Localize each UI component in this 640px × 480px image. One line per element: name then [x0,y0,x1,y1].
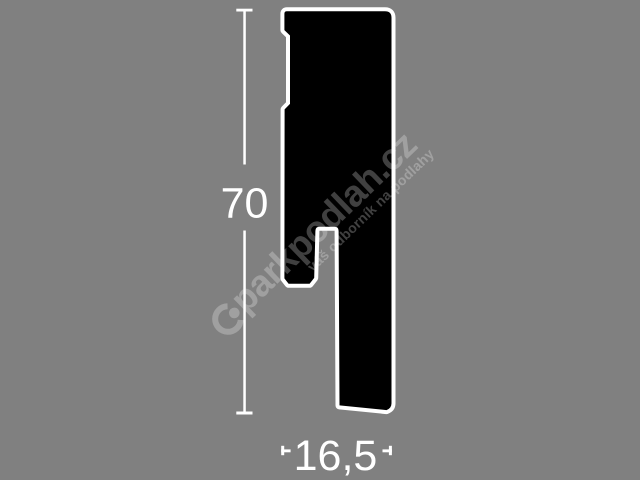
svg-text:70: 70 [221,179,269,227]
svg-text:16,5: 16,5 [294,432,378,480]
